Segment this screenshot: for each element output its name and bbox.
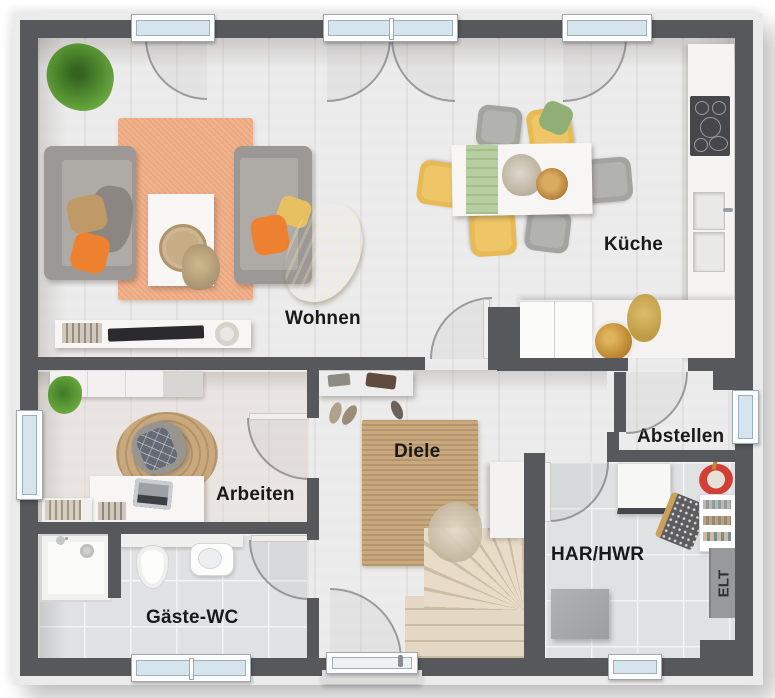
window-divider-2 [189, 658, 194, 680]
room-label-diele: Diele [394, 441, 440, 463]
office-books-1 [45, 500, 81, 520]
wall-office-wc [38, 522, 319, 534]
burner-4 [694, 138, 708, 152]
pillow-orange-2 [249, 213, 291, 257]
wall-corner-block [700, 640, 735, 658]
shelf-items-1 [703, 500, 731, 509]
burner-1 [695, 101, 709, 115]
window-living-1 [131, 14, 215, 42]
burner-3 [700, 117, 721, 138]
window-utility [608, 654, 662, 680]
shower-tray [40, 534, 112, 602]
room-label-arbeiten: Arbeiten [216, 484, 295, 506]
table-flowers [502, 154, 542, 196]
cabinet-door-line [554, 301, 555, 358]
wall-kitchen-south-left [497, 358, 628, 371]
window-living-2 [323, 14, 458, 42]
wall-pier-storage [713, 358, 735, 390]
wc-door-leaf [251, 535, 309, 542]
floor-plan: Wohnen Küche Diele Ar [0, 0, 775, 698]
shower-partition-wall [108, 534, 121, 598]
window-divider [389, 18, 394, 40]
wall-hall-west-3 [307, 598, 319, 658]
table-runner [466, 145, 498, 214]
sink-basin-2 [693, 232, 725, 272]
window-storage [732, 390, 759, 444]
entry-door [326, 652, 418, 674]
shelf-items-2 [703, 516, 731, 525]
wc-sink-basin [198, 548, 222, 569]
flower-vase [627, 294, 661, 342]
stairs-landing [490, 462, 524, 538]
fruit-bowl [595, 323, 632, 360]
dried-plant-hall [428, 502, 482, 562]
elt-panel: ELT [709, 548, 737, 618]
wall-exterior-right [735, 20, 753, 676]
burner-2 [712, 101, 726, 115]
wall-stair-utility [524, 453, 545, 658]
room-label-abstellen: Abstellen [637, 426, 724, 448]
room-label-wohnen: Wohnen [285, 308, 361, 330]
book-stack [62, 323, 102, 343]
elt-label: ELT [716, 569, 733, 597]
storage-door-leaf [614, 372, 626, 432]
window-office [16, 410, 43, 500]
room-label-kueche: Küche [604, 234, 663, 256]
wall-hall-west-1 [307, 370, 319, 418]
wall-storage-utility [609, 450, 735, 462]
sideboard-decor [327, 373, 350, 387]
faucet [723, 208, 733, 212]
laptop [133, 478, 174, 510]
window-kitchen [562, 14, 652, 42]
room-label-har-hwr: HAR/HWR [551, 544, 644, 566]
dining-chair-yellow-3 [468, 208, 517, 257]
window-wc [131, 654, 251, 682]
burner-5 [709, 136, 728, 151]
utility-door-leaf [544, 462, 551, 522]
shelf-items-3 [703, 532, 731, 541]
entry-door-handle [398, 655, 403, 667]
shower-head [56, 536, 65, 545]
kitchen-cabinet [519, 301, 593, 360]
shower-drain [80, 544, 94, 558]
speaker [215, 322, 239, 346]
office-books-2 [98, 502, 126, 520]
wall-living-south [38, 357, 425, 370]
utility-box [551, 589, 609, 639]
sink-basin-1 [693, 192, 725, 230]
washing-machine [617, 463, 671, 514]
dried-grass-decor [182, 244, 220, 290]
table-bowl [536, 168, 568, 200]
room-label-gaeste-wc: Gäste-WC [146, 607, 238, 629]
office-door-leaf [249, 413, 309, 420]
wall-exterior-left [20, 20, 38, 676]
